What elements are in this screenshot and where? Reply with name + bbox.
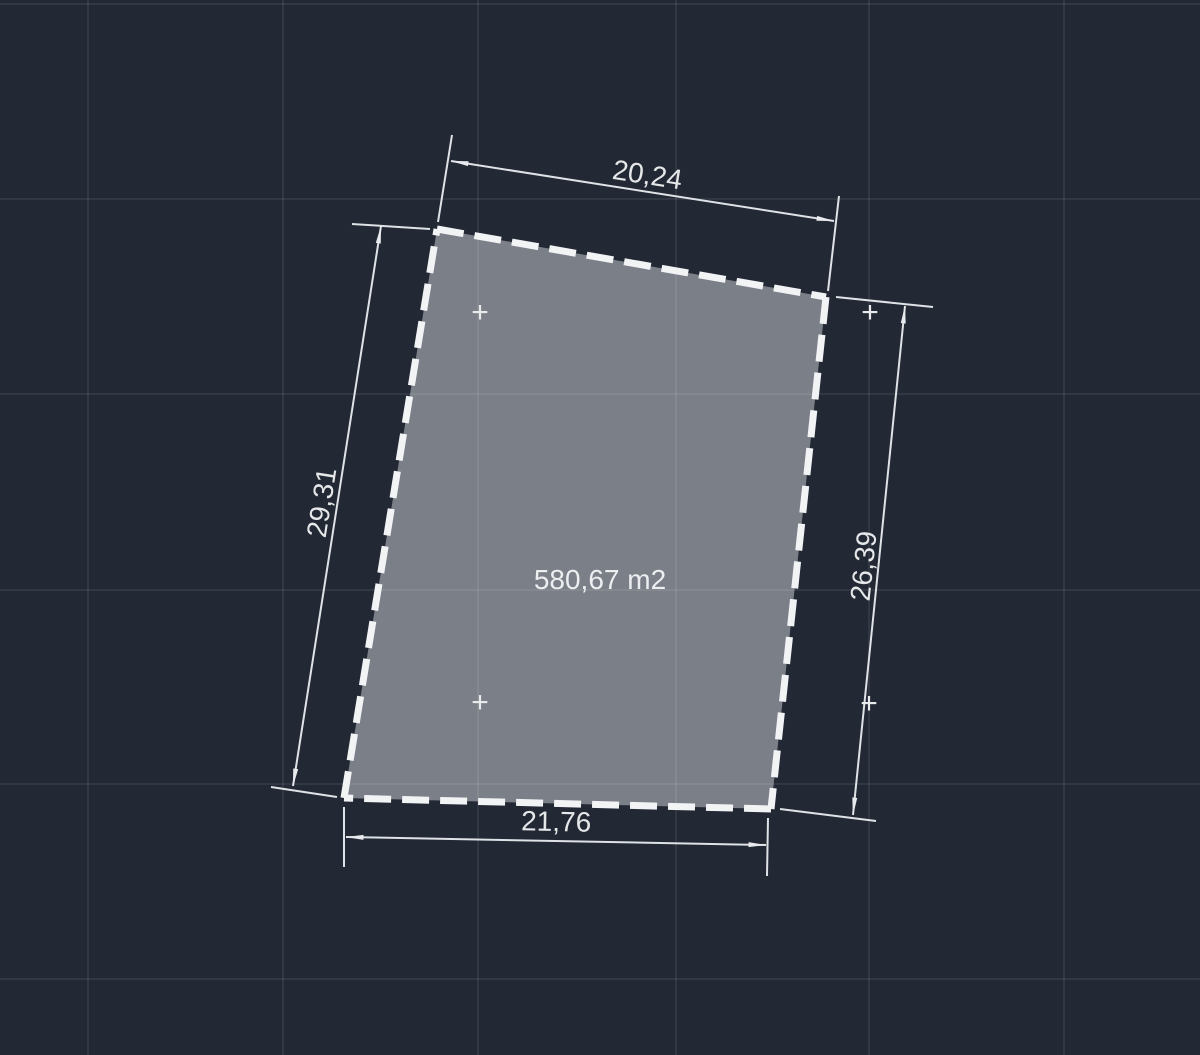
dim-bottom-label[interactable]: 21,76 [521,805,592,837]
cad-viewport[interactable]: 20,24 29,31 26,39 21,76 580,67 m2 + + + … [0,0,1200,1055]
parcel-area-label[interactable]: 580,67 m2 [534,564,666,595]
grid-cross-icon: + [860,687,878,720]
dim-bottom-extension-line[interactable] [767,818,768,876]
grid-cross-icon: + [471,296,489,329]
grid-cross-icon: + [861,296,879,329]
grid-cross-icon: + [471,686,489,719]
